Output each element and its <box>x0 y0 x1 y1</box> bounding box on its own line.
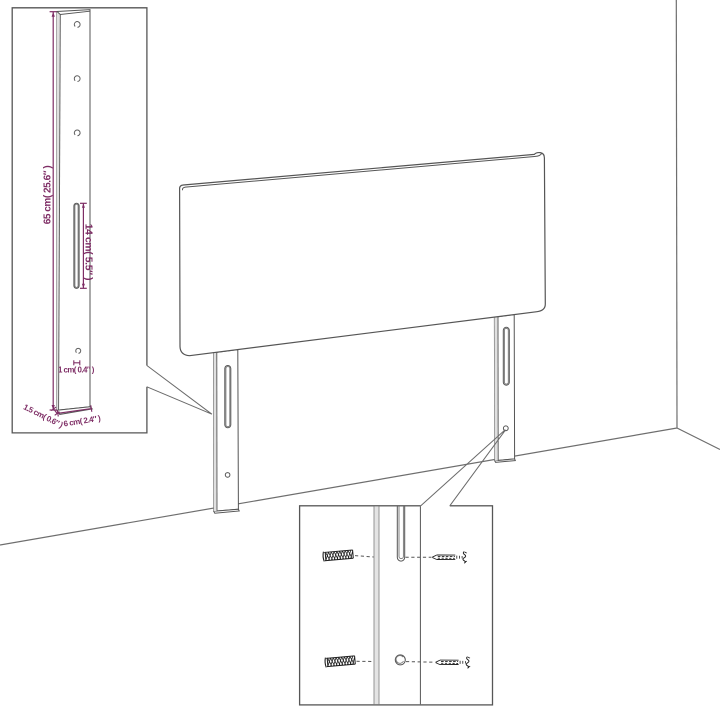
svg-text:65 cm( 25.6″ ): 65 cm( 25.6″ ) <box>43 166 54 225</box>
svg-text:1 cm( 0.4″ ): 1 cm( 0.4″ ) <box>58 366 95 375</box>
svg-text:14 cm( 5.5″ ): 14 cm( 5.5″ ) <box>83 224 94 280</box>
